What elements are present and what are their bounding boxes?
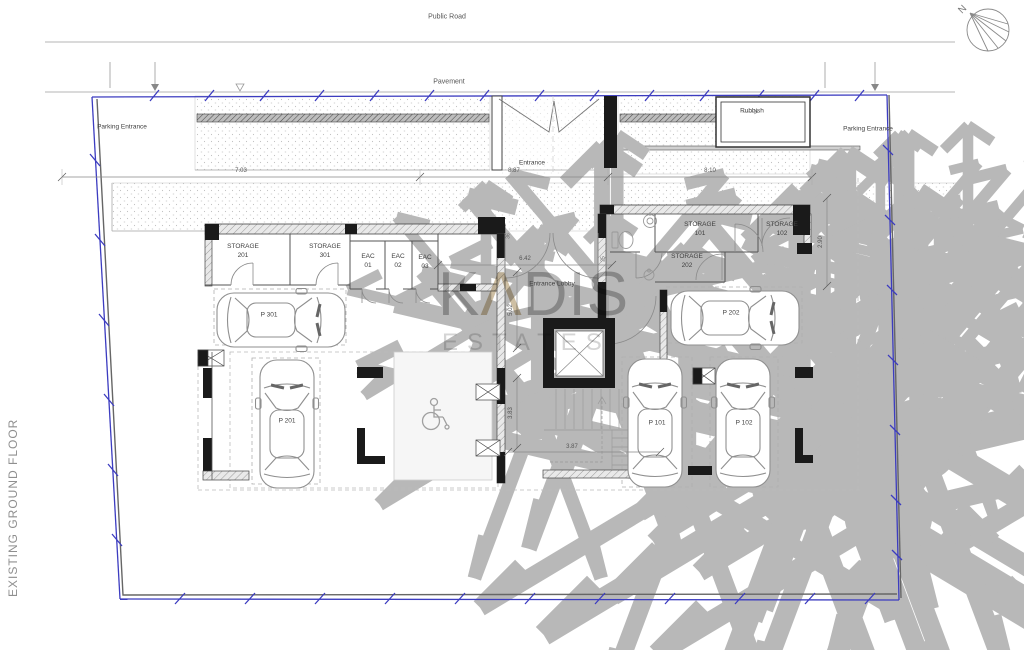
entrance-lobby-label: Entrance Lobby (529, 281, 575, 290)
public-road-label: Public Road (428, 12, 466, 21)
parking-label-p102: P 102 (736, 420, 753, 429)
entrance-label: Entrance (519, 160, 545, 169)
parking-label-p201: P 201 (279, 418, 296, 427)
pavement-label: Pavement (433, 77, 465, 86)
dim-top-right: 8.10 (704, 167, 716, 175)
ramp-slab (394, 352, 492, 480)
dim-top-mid: 8.87 (508, 167, 520, 175)
rubbish-room (716, 97, 810, 147)
parking-label-p101: P 101 (649, 420, 666, 429)
dim-right-height: 2.90 (817, 236, 825, 248)
parking-label-p202: P 202 (723, 310, 740, 319)
room-label-storage-102: STORAGE102 (766, 221, 798, 239)
dim-lobby-width: 6.42 (519, 255, 531, 263)
parking-entrance-right-label: Parking Entrance (843, 126, 893, 135)
dim-lobby-height: 5.02 (507, 304, 515, 316)
room-label-storage-101: STORAGE101 (684, 221, 716, 239)
dim-wall-t1: 36 (506, 233, 513, 239)
survey-ticks (110, 62, 879, 91)
road-lines (45, 42, 955, 92)
room-label-storage-201: STORAGE201 (227, 243, 259, 261)
room-label-eac-02: EAC02 (391, 253, 404, 271)
svg-text:N: N (956, 3, 969, 16)
car-p301 (217, 289, 345, 352)
dim-stair-height: 3.83 (507, 407, 515, 419)
room-label-storage-301: STORAGE301 (309, 243, 341, 261)
room-label-eac-01: EAC01 (361, 253, 374, 271)
parking-label-p301: P 301 (261, 312, 278, 321)
plan-drawing: N (0, 0, 1024, 650)
dim-top-left: 7.03 (235, 167, 247, 175)
room-label-storage-202: STORAGE202 (671, 253, 703, 271)
floor-title: EXISTING GROUND FLOOR (6, 419, 20, 597)
dim-wall-t2: 25 (601, 256, 608, 262)
rubbish-label: Rubbish (740, 108, 764, 117)
dim-stair-width: 3.87 (566, 443, 578, 451)
room-label-eac-03: EAC03 (418, 254, 431, 272)
parking-entrance-left-label: Parking Entrance (97, 124, 147, 133)
floorplan-canvas: N KΛDIS ESTATES Public Road Pavement Par… (0, 0, 1024, 650)
north-arrow-icon: N (956, 3, 1009, 51)
